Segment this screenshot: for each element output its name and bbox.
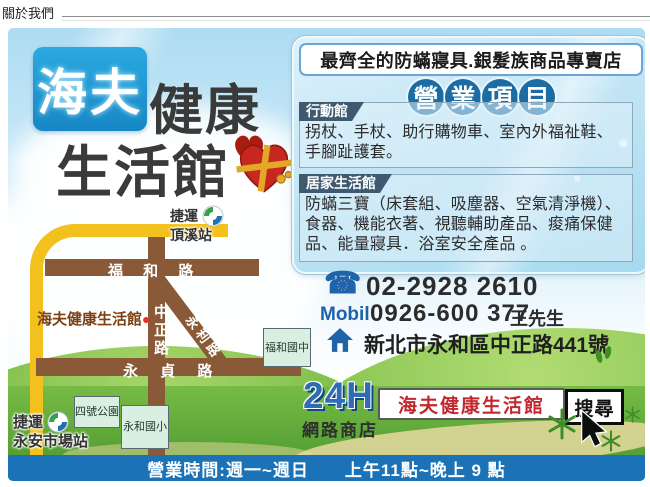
mobile-number: 0926-600 377: [370, 300, 530, 328]
page: 關於我們 福 和 路 中正路 永利路 永 貞 路 海夫健康生活館● 捷運: [0, 0, 650, 487]
header-divider: [62, 16, 650, 21]
station-dingxi: 捷運 頂溪站: [170, 205, 224, 243]
landmark-yonghe-elementary: 永和國小: [121, 405, 169, 449]
section-mobility: 行動館 拐杖、手杖、助行購物車、室內外福祉鞋、手腳趾護套。: [299, 102, 633, 168]
home-icon: [326, 327, 354, 353]
mrt-logo-icon: [47, 411, 69, 433]
phone-icon: ☎: [324, 266, 361, 301]
contact-person: 王先生: [510, 305, 564, 331]
business-info-panel: 最齊全的防蟎寢具.銀髮族商品專賣店 營 業 項 目 行動館 拐杖、手杖、助行購物…: [292, 36, 645, 274]
phone-number: 02-2928 2610: [366, 271, 538, 302]
address-text: 新北市永和區中正路441號: [364, 329, 609, 359]
road-label-fuhe: 福 和 路: [108, 260, 201, 281]
landmark-no4-park: 四號公園: [74, 396, 120, 428]
online-shop-label: 網路商店: [302, 416, 378, 441]
store-flyer: 福 和 路 中正路 永利路 永 貞 路 海夫健康生活館● 捷運 頂溪站 捷運: [8, 28, 645, 481]
section-text-mobility: 拐杖、手杖、助行購物車、室內外福祉鞋、手腳趾護套。: [305, 123, 625, 163]
sparkle-icon: [600, 430, 622, 452]
section-badge-home-living: 居家生活館: [299, 174, 392, 193]
sparkle-icon: [624, 406, 641, 423]
map-store-label: 海夫健康生活館●: [37, 308, 150, 329]
mobile-label: Mobil: [320, 304, 370, 326]
section-badge-mobility: 行動館: [299, 102, 364, 121]
search-input[interactable]: [378, 388, 565, 420]
tagline-banner: 最齊全的防蟎寢具.銀髮族商品專賣店: [299, 43, 643, 76]
gift-box-icon: [230, 132, 298, 196]
24h-badge: 24H: [303, 375, 374, 417]
road-label-zhongzheng: 中正路: [150, 304, 171, 358]
road-label-yongzhen: 永 貞 路: [123, 360, 221, 381]
sparkle-icon: [546, 408, 578, 440]
store-location-dot: ●: [142, 311, 150, 327]
section-title-about-us: 關於我們: [2, 3, 54, 22]
section-home-living: 居家生活館 防蟎三寶（床套組、吸塵器、空氣清淨機）、食器、機能衣著、視聽輔助產品…: [299, 174, 633, 262]
landmark-fuhe-junior-high: 福和國中: [263, 328, 311, 367]
brand-logo-haifu: 海夫: [33, 47, 147, 131]
business-hours-bar: 營業時間:週一~週日 上午11點~晚上 9 點: [8, 455, 645, 481]
section-text-home-living: 防蟎三寶（床套組、吸塵器、空氣清淨機）、食器、機能衣著、視聽輔助產品、痠痛保健品…: [305, 195, 625, 255]
logo-word-life-house: 生活館: [56, 128, 230, 209]
